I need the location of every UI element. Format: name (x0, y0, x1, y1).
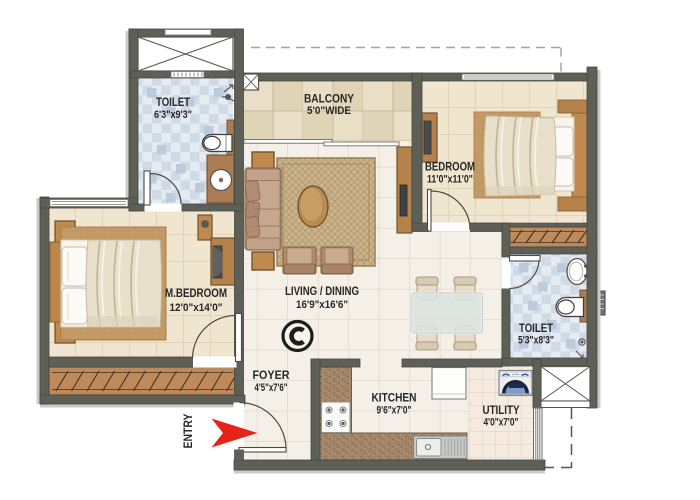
svg-text:11'0"x11'0": 11'0"x11'0" (427, 174, 473, 186)
svg-text:FOYER: FOYER (253, 368, 290, 382)
svg-text:BEDROOM: BEDROOM (425, 160, 475, 174)
svg-text:BALCONY: BALCONY (304, 92, 354, 106)
svg-text:4'5"x7'6": 4'5"x7'6" (255, 382, 288, 394)
svg-text:12'0"x14'0": 12'0"x14'0" (170, 302, 223, 314)
svg-text:16'9"x16'6": 16'9"x16'6" (296, 299, 348, 311)
svg-text:6'3"x9'3": 6'3"x9'3" (154, 109, 192, 121)
svg-text:UTILITY: UTILITY (483, 403, 520, 417)
svg-text:5'3"x8'3": 5'3"x8'3" (518, 335, 554, 347)
svg-text:TOILET: TOILET (156, 95, 191, 109)
svg-text:TOILET: TOILET (519, 321, 554, 335)
svg-text:5'0"WIDE: 5'0"WIDE (307, 105, 351, 117)
svg-text:LIVING / DINING: LIVING / DINING (285, 284, 359, 298)
svg-text:M.BEDROOM: M.BEDROOM (165, 286, 227, 300)
svg-text:4'0"x7'0": 4'0"x7'0" (484, 417, 519, 429)
svg-text:ENTRY: ENTRY (181, 414, 195, 449)
svg-text:KITCHEN: KITCHEN (372, 391, 417, 405)
svg-text:9'6"x7'0": 9'6"x7'0" (377, 405, 412, 417)
